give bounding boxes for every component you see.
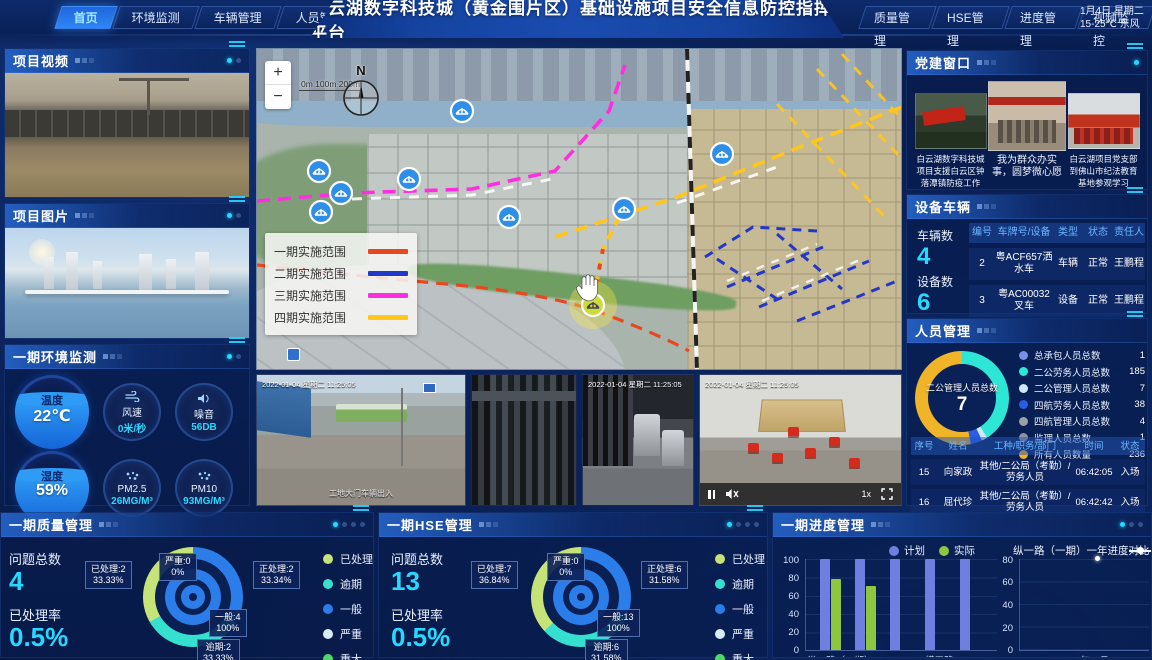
panel-title: 党建窗口 (915, 53, 971, 72)
stat-label: 车辆数 (917, 227, 953, 244)
panel-vehicles: 设备车辆 车辆数 4 设备数 6 编号 车牌号/设备 类型 状态 责任人 2 粤… (906, 194, 1148, 314)
turnstile (662, 430, 684, 466)
donut-center-label: 二公管理人员总数 (926, 381, 998, 394)
panel-pager (333, 522, 365, 527)
mute-icon[interactable] (725, 488, 739, 500)
camera-timestamp: 2022-01-04 星期二 11:25:05 (705, 379, 799, 390)
camera-feed-gate[interactable] (471, 374, 577, 506)
building (66, 252, 78, 290)
camera-feed-room[interactable]: 2022-01-04 星期二 11:25:05 1x (699, 374, 902, 506)
legend-swatch (368, 293, 408, 298)
y-tick: 40 (777, 609, 799, 620)
party-photo (915, 93, 987, 149)
title-deco (977, 328, 996, 333)
hse-legend: 已处理 逾期 一般 严重 重大 (715, 551, 765, 660)
particles-icon (197, 470, 211, 483)
panel-project-video: 项目视频 (4, 48, 250, 198)
title-deco (99, 522, 118, 527)
tab-progress[interactable]: 进度管理 (1005, 6, 1083, 29)
party-caption: 我为群众办实事，圆梦微心愿 (988, 155, 1066, 179)
table-header: 编号 车牌号/设备 类型 状态 责任人 (969, 223, 1145, 243)
callout-general: 一般:13100% (597, 609, 640, 637)
video-controls: 1x (700, 483, 901, 505)
bridge-structure (25, 290, 230, 294)
party-photo (988, 81, 1066, 151)
title-deco (977, 204, 996, 209)
fullscreen-icon[interactable] (881, 488, 893, 500)
building (93, 261, 102, 289)
weather-text: 15-25℃ 东风 (1080, 18, 1152, 31)
legend-swatch (368, 249, 408, 254)
phase2-grid (705, 227, 897, 321)
donut-core-hole (577, 593, 585, 601)
red-stool (805, 448, 816, 457)
panel-hse: 一期HSE管理 问题总数 13 已处理率 0.5% 已处理:736.84% 严重… (378, 512, 768, 658)
wooden-table (758, 400, 846, 432)
camera-timestamp: 2022-01-04 星期二 11:25:05 (262, 379, 356, 390)
personnel-table: 序号 姓名 工种/职务/部门 时间 状态 15 向家政 其他/二公局（考勤）/劳… (911, 437, 1145, 515)
y-tick: 80 (777, 573, 799, 584)
gauge-value: 0米/秒 (118, 420, 146, 435)
tab-quality[interactable]: 质量管理 (858, 6, 936, 29)
panel-quality: 一期质量管理 问题总数 4 已处理率 0.5% 已处理:233.33% 严重:0… (0, 512, 374, 658)
bar (820, 559, 830, 650)
y-tick: 0 (777, 645, 799, 656)
y-tick: 100 (777, 555, 799, 566)
panel-pager (727, 522, 759, 527)
panel-pager (227, 213, 241, 218)
panel-pager (227, 354, 241, 359)
x-label: 2021年11月 (1059, 653, 1109, 658)
bar (831, 579, 841, 650)
bar (960, 559, 970, 650)
title-deco (75, 213, 94, 218)
red-stool (772, 453, 783, 462)
red-stool (748, 443, 759, 452)
temperature-gauge: 温度 22℃ (15, 375, 89, 449)
y-tick: 20 (991, 623, 1013, 634)
gauge-value: 22℃ (15, 406, 89, 426)
panel-party: 党建窗口 白云湖数字科技城项目支援白云区钟落潭镇防疫工作 我为群众办实事，圆梦微… (906, 50, 1148, 190)
vehicles-table: 编号 车牌号/设备 类型 状态 责任人 2 粤ACF657洒水车 车辆 正常 王… (969, 223, 1145, 317)
phase4-route (555, 107, 902, 237)
party-card[interactable]: 我为群众办实事，圆梦微心愿 (988, 81, 1066, 179)
camera-timestamp: 2022-01-04 星期二 11:25:05 (588, 379, 682, 390)
callout-processed: 已处理:233.33% (85, 561, 132, 589)
camera-feed-gate-road[interactable]: 2022-01-04 星期二 11:25:05 工地大门车辆出入 (256, 374, 466, 506)
wind-icon (125, 390, 140, 403)
hse-rate-block: 已处理率 0.5% (391, 605, 450, 650)
title-deco (871, 522, 890, 527)
map-layer-button[interactable] (287, 348, 300, 361)
party-card[interactable]: 白云湖数字科技城项目支援白云区钟落潭镇防疫工作 (913, 93, 988, 189)
camera-feed-turnstile[interactable]: 2022-01-04 星期二 11:25:05 (582, 374, 694, 506)
panel-title: 人员管理 (915, 321, 971, 340)
line-legend-icon (1129, 550, 1151, 552)
datetime-weather: 1月4日 星期二 15-25℃ 东风 (1080, 5, 1152, 31)
legend-label: 四期实施范围 (274, 309, 346, 326)
callout-overdue: 逾期:233.33% (197, 639, 240, 660)
project-photo-frame[interactable] (5, 228, 249, 338)
playback-speed[interactable]: 1x (861, 489, 871, 499)
quality-legend: 已处理 逾期 一般 严重 重大 (323, 551, 373, 660)
crane-silhouette (147, 78, 150, 115)
pm25-gauge: PM2.5 26MG/M³ (103, 459, 161, 517)
blue-wall (257, 382, 311, 439)
building (166, 259, 176, 289)
legend-swatch (368, 271, 408, 276)
device-count-block: 设备数 6 (917, 273, 953, 316)
compass-n-label: N (339, 63, 383, 78)
panel-title: 一期HSE管理 (387, 515, 473, 534)
gauge-label: PM10 (191, 484, 217, 495)
tab-environment[interactable]: 环境监测 (112, 6, 199, 29)
building (195, 252, 209, 290)
personnel-donut-chart: 二公管理人员总数 7 (915, 351, 1009, 445)
panel-title: 一期环境监测 (13, 347, 97, 366)
tab-hse[interactable]: HSE管理 (931, 6, 1010, 29)
bar (866, 586, 876, 650)
progress-line-plot (1019, 559, 1149, 651)
tab-home[interactable]: 首页 (54, 6, 117, 29)
gauge-label: PM2.5 (118, 484, 147, 495)
table-row[interactable]: 15 向家政 其他/二公局（考勤）/劳务人员 06:42:05 入场 (911, 459, 1145, 485)
bar (855, 559, 865, 650)
pm10-gauge: PM10 93MG/M³ (175, 459, 233, 517)
gauge-value: 59% (15, 482, 89, 500)
road-sign (423, 383, 436, 393)
zoom-in-button[interactable]: + (265, 61, 291, 85)
phase4-grid (777, 54, 902, 217)
gauge-value: 93MG/M³ (183, 496, 225, 507)
line-chart-legend: 实际 (1129, 543, 1152, 558)
panel-pager (227, 58, 241, 63)
callout-severe: 严重:00% (159, 553, 197, 581)
y-tick: 40 (991, 600, 1013, 611)
building (139, 254, 152, 290)
building (44, 257, 54, 289)
title-deco (103, 354, 122, 359)
stat-value: 6 (917, 290, 953, 316)
table-row[interactable]: 2 粤ACF657洒水车 车辆 正常 王鹏程 (969, 248, 1145, 280)
date-text: 1月4日 星期二 (1080, 5, 1152, 18)
railway-line (687, 49, 697, 370)
red-stool (849, 458, 860, 467)
bar-chart-legend: 计划 实际 (889, 543, 975, 558)
progress-bar-plot (805, 559, 997, 651)
legend-swatch (368, 315, 408, 320)
stat-value: 4 (9, 568, 61, 594)
panel-title: 项目视频 (13, 51, 69, 70)
page-title: 白云湖数字科技城（黄金围片区）基础设施项目安全信息防控指挥平台 (310, 0, 844, 44)
hse-total-block: 问题总数 13 (391, 549, 443, 594)
panel-environment: 一期环境监测 温度 22℃ 风速 0米/秒 噪音 56DB 湿度 59 (4, 344, 250, 506)
pause-icon[interactable] (708, 490, 715, 499)
map-zoom-control: + − (265, 61, 291, 109)
bus (336, 404, 407, 422)
turnstile (634, 414, 660, 456)
x-label: 横三路 (925, 653, 954, 658)
panel-pager (1134, 60, 1139, 65)
camera-strip: 2022-01-04 星期二 11:25:05 工地大门车辆出入 2022-01… (256, 374, 902, 506)
y-tick: 60 (991, 577, 1013, 588)
callout-processing: 正处理:233.34% (253, 561, 300, 589)
red-stool (788, 427, 799, 436)
panel-title: 设备车辆 (915, 197, 971, 216)
gauge-value: 56DB (191, 422, 217, 433)
legend-label: 三期实施范围 (274, 287, 346, 304)
stat-value: 0.5% (9, 624, 68, 650)
noise-icon (197, 392, 211, 405)
camera-caption: 工地大门车辆出入 (257, 488, 465, 499)
site-wall (5, 110, 249, 137)
panel-title: 一期质量管理 (9, 515, 93, 534)
map-legend: 一期实施范围 二期实施范围 三期实施范围 四期实施范围 (265, 233, 417, 335)
callout-overdue: 逾期:631.58% (585, 639, 628, 660)
party-photo (1068, 93, 1140, 149)
panel-personnel: 人员管理 二公管理人员总数 7 总承包人员总数1 二公劳务人员总数185 二公管… (906, 318, 1148, 506)
stat-value: 4 (917, 244, 953, 270)
y-tick: 20 (777, 627, 799, 638)
y-tick: 60 (777, 591, 799, 602)
callout-processed: 已处理:736.84% (471, 561, 518, 589)
compass-icon (341, 78, 381, 118)
pole (401, 388, 403, 466)
title-deco (479, 522, 498, 527)
gauge-value: 26MG/M³ (111, 496, 153, 507)
gauge-label: 噪音 (194, 406, 214, 421)
compass: N (339, 63, 383, 119)
title-deco (977, 60, 996, 65)
tab-vehicle[interactable]: 车辆管理 (194, 6, 281, 29)
legend-label: 一期实施范围 (274, 243, 346, 260)
donut-center-value: 7 (957, 394, 968, 416)
callout-general: 一般:4100% (209, 609, 247, 637)
quality-total-block: 问题总数 4 (9, 549, 61, 594)
wind-gauge: 风速 0米/秒 (103, 383, 161, 441)
party-card[interactable]: 白云湖项目党支部到佛山市纪法教育基地参观学习 (1066, 93, 1141, 189)
donut-core-hole (189, 593, 197, 601)
callout-severe: 严重:00% (547, 553, 585, 581)
stat-value: 0.5% (391, 624, 450, 650)
callout-processing: 正处理:631.58% (641, 561, 688, 589)
top-header: 首页 环境监测 车辆管理 人员管理 白云湖数字科技城（黄金围片区）基础设施项目安… (0, 0, 1152, 46)
legend-label: 二期实施范围 (274, 265, 346, 282)
zoom-out-button[interactable]: − (265, 85, 291, 109)
left-nav: 首页 环境监测 车辆管理 人员管理 (58, 6, 360, 29)
quality-rate-block: 已处理率 0.5% (9, 605, 68, 650)
gauge-label: 风速 (122, 404, 142, 419)
table-row[interactable]: 3 粤AC00032叉车 设备 正常 王鹏程 (969, 285, 1145, 317)
bar (925, 559, 935, 650)
platform-title-band: 白云湖数字科技城（黄金围片区）基础设施项目安全信息防控指挥平台 (310, 0, 844, 38)
panel-project-photo: 项目图片 (4, 203, 250, 339)
y-tick: 80 (991, 555, 1013, 566)
vehicle-count-block: 车辆数 4 (917, 227, 953, 270)
title-deco (75, 58, 94, 63)
panel-title: 项目图片 (13, 206, 69, 225)
stat-label: 设备数 (917, 273, 953, 290)
red-stool (829, 437, 840, 446)
bar (890, 559, 900, 650)
panel-progress: 一期进度管理 计划 实际 100 80 60 40 20 0 纵一路（一期） 横… (772, 512, 1152, 658)
y-tick: 0 (991, 645, 1013, 656)
city-map[interactable]: + − 0m 100m 200m N 一期实施范围 二期实施范围 三期实施范围 … (256, 48, 902, 370)
data-point (1095, 556, 1100, 561)
party-caption: 白云湖数字科技城项目支援白云区钟落潭镇防疫工作 (913, 153, 988, 189)
x-label: 纵一路（一期） (807, 653, 874, 658)
gate-beam (472, 391, 576, 401)
panel-pager (1120, 522, 1143, 527)
particles-icon (125, 470, 139, 483)
stat-value: 13 (391, 568, 443, 594)
noise-gauge: 噪音 56DB (175, 383, 233, 441)
panel-title: 一期进度管理 (781, 515, 865, 534)
project-video-frame[interactable] (5, 73, 249, 197)
party-caption: 白云湖项目党支部到佛山市纪法教育基地参观学习 (1066, 153, 1141, 189)
